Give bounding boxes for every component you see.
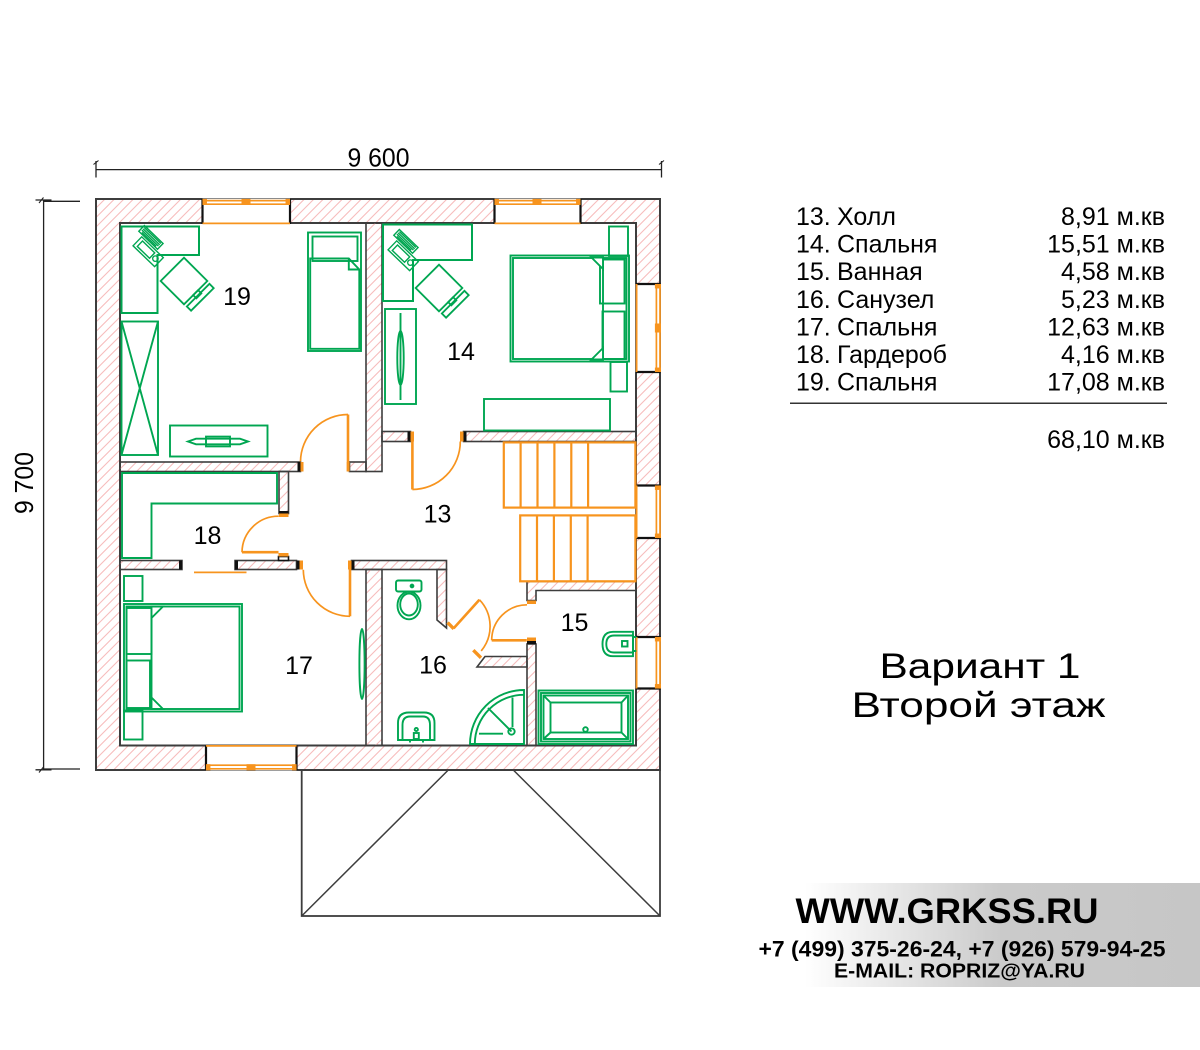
svg-text:13.: 13. <box>796 203 831 231</box>
svg-text:13: 13 <box>424 501 452 529</box>
svg-text:14: 14 <box>447 338 475 366</box>
svg-text:17: 17 <box>285 652 313 680</box>
svg-text:Санузел: Санузел <box>837 286 934 314</box>
svg-text:+7 (499) 375-26-24, +7 (926) 5: +7 (499) 375-26-24, +7 (926) 579-94-25 <box>759 937 1166 962</box>
svg-text:68,10 м.кв: 68,10 м.кв <box>1047 426 1165 454</box>
svg-text:9 700: 9 700 <box>9 452 39 514</box>
svg-text:5,23 м.кв: 5,23 м.кв <box>1061 286 1165 314</box>
svg-text:4,58 м.кв: 4,58 м.кв <box>1061 258 1165 286</box>
svg-text:12,63 м.кв: 12,63 м.кв <box>1047 313 1165 341</box>
svg-text:19: 19 <box>223 283 251 311</box>
svg-text:18.: 18. <box>796 341 831 369</box>
svg-text:17.: 17. <box>796 313 831 341</box>
svg-text:9 600: 9 600 <box>348 143 410 173</box>
svg-text:17,08 м.кв: 17,08 м.кв <box>1047 369 1165 397</box>
svg-text:Ванная: Ванная <box>837 258 923 286</box>
svg-text:Вариант 1: Вариант 1 <box>880 647 1081 686</box>
svg-text:WWW.GRKSS.RU: WWW.GRKSS.RU <box>796 892 1099 931</box>
svg-text:Спальня: Спальня <box>837 369 937 397</box>
svg-text:Гардероб: Гардероб <box>837 341 947 369</box>
svg-text:16.: 16. <box>796 286 831 314</box>
svg-text:Второй этаж: Второй этаж <box>852 686 1107 725</box>
svg-text:Спальня: Спальня <box>837 313 937 341</box>
svg-text:18: 18 <box>194 522 222 550</box>
svg-text:14.: 14. <box>796 231 831 259</box>
svg-text:Спальня: Спальня <box>837 231 937 259</box>
svg-text:Холл: Холл <box>837 203 896 231</box>
svg-text:19.: 19. <box>796 369 831 397</box>
svg-text:16: 16 <box>419 652 447 680</box>
svg-text:E-MAIL: ROPRIZ@YA.RU: E-MAIL: ROPRIZ@YA.RU <box>834 961 1085 983</box>
svg-text:15.: 15. <box>796 258 831 286</box>
svg-text:15,51 м.кв: 15,51 м.кв <box>1047 231 1165 259</box>
svg-text:8,91 м.кв: 8,91 м.кв <box>1061 203 1165 231</box>
svg-text:15: 15 <box>561 609 589 637</box>
svg-text:4,16 м.кв: 4,16 м.кв <box>1061 341 1165 369</box>
